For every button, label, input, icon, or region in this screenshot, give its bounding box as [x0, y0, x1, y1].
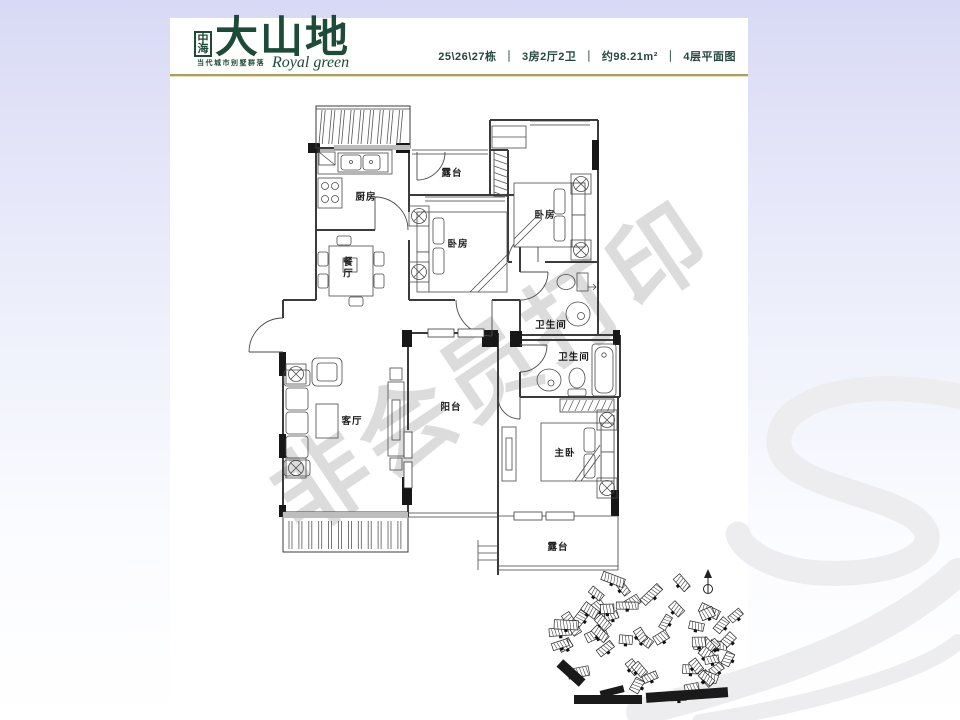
- pergola-louver-top: [316, 106, 410, 150]
- terrace-stairs: [478, 540, 498, 570]
- bed-topright-bedroom: [514, 183, 585, 247]
- bathroom-upper-fixtures: [557, 273, 596, 326]
- north-arrow-icon: [704, 569, 713, 594]
- floor-plan-drawing: [0, 0, 960, 720]
- site-plan: [549, 569, 745, 704]
- shoe-cabinet-hatch: [494, 150, 508, 197]
- pergola-louver-bottom: [283, 512, 408, 552]
- kitchen-fixtures: [318, 150, 392, 208]
- bed-middle-bedroom: [417, 212, 507, 292]
- entry-closet: [492, 126, 526, 148]
- dining-table: [318, 236, 384, 306]
- bed-master-bedroom: [541, 423, 614, 481]
- bathroom-lower-fixtures: [537, 344, 616, 396]
- master-tv-cabinet: [502, 427, 516, 481]
